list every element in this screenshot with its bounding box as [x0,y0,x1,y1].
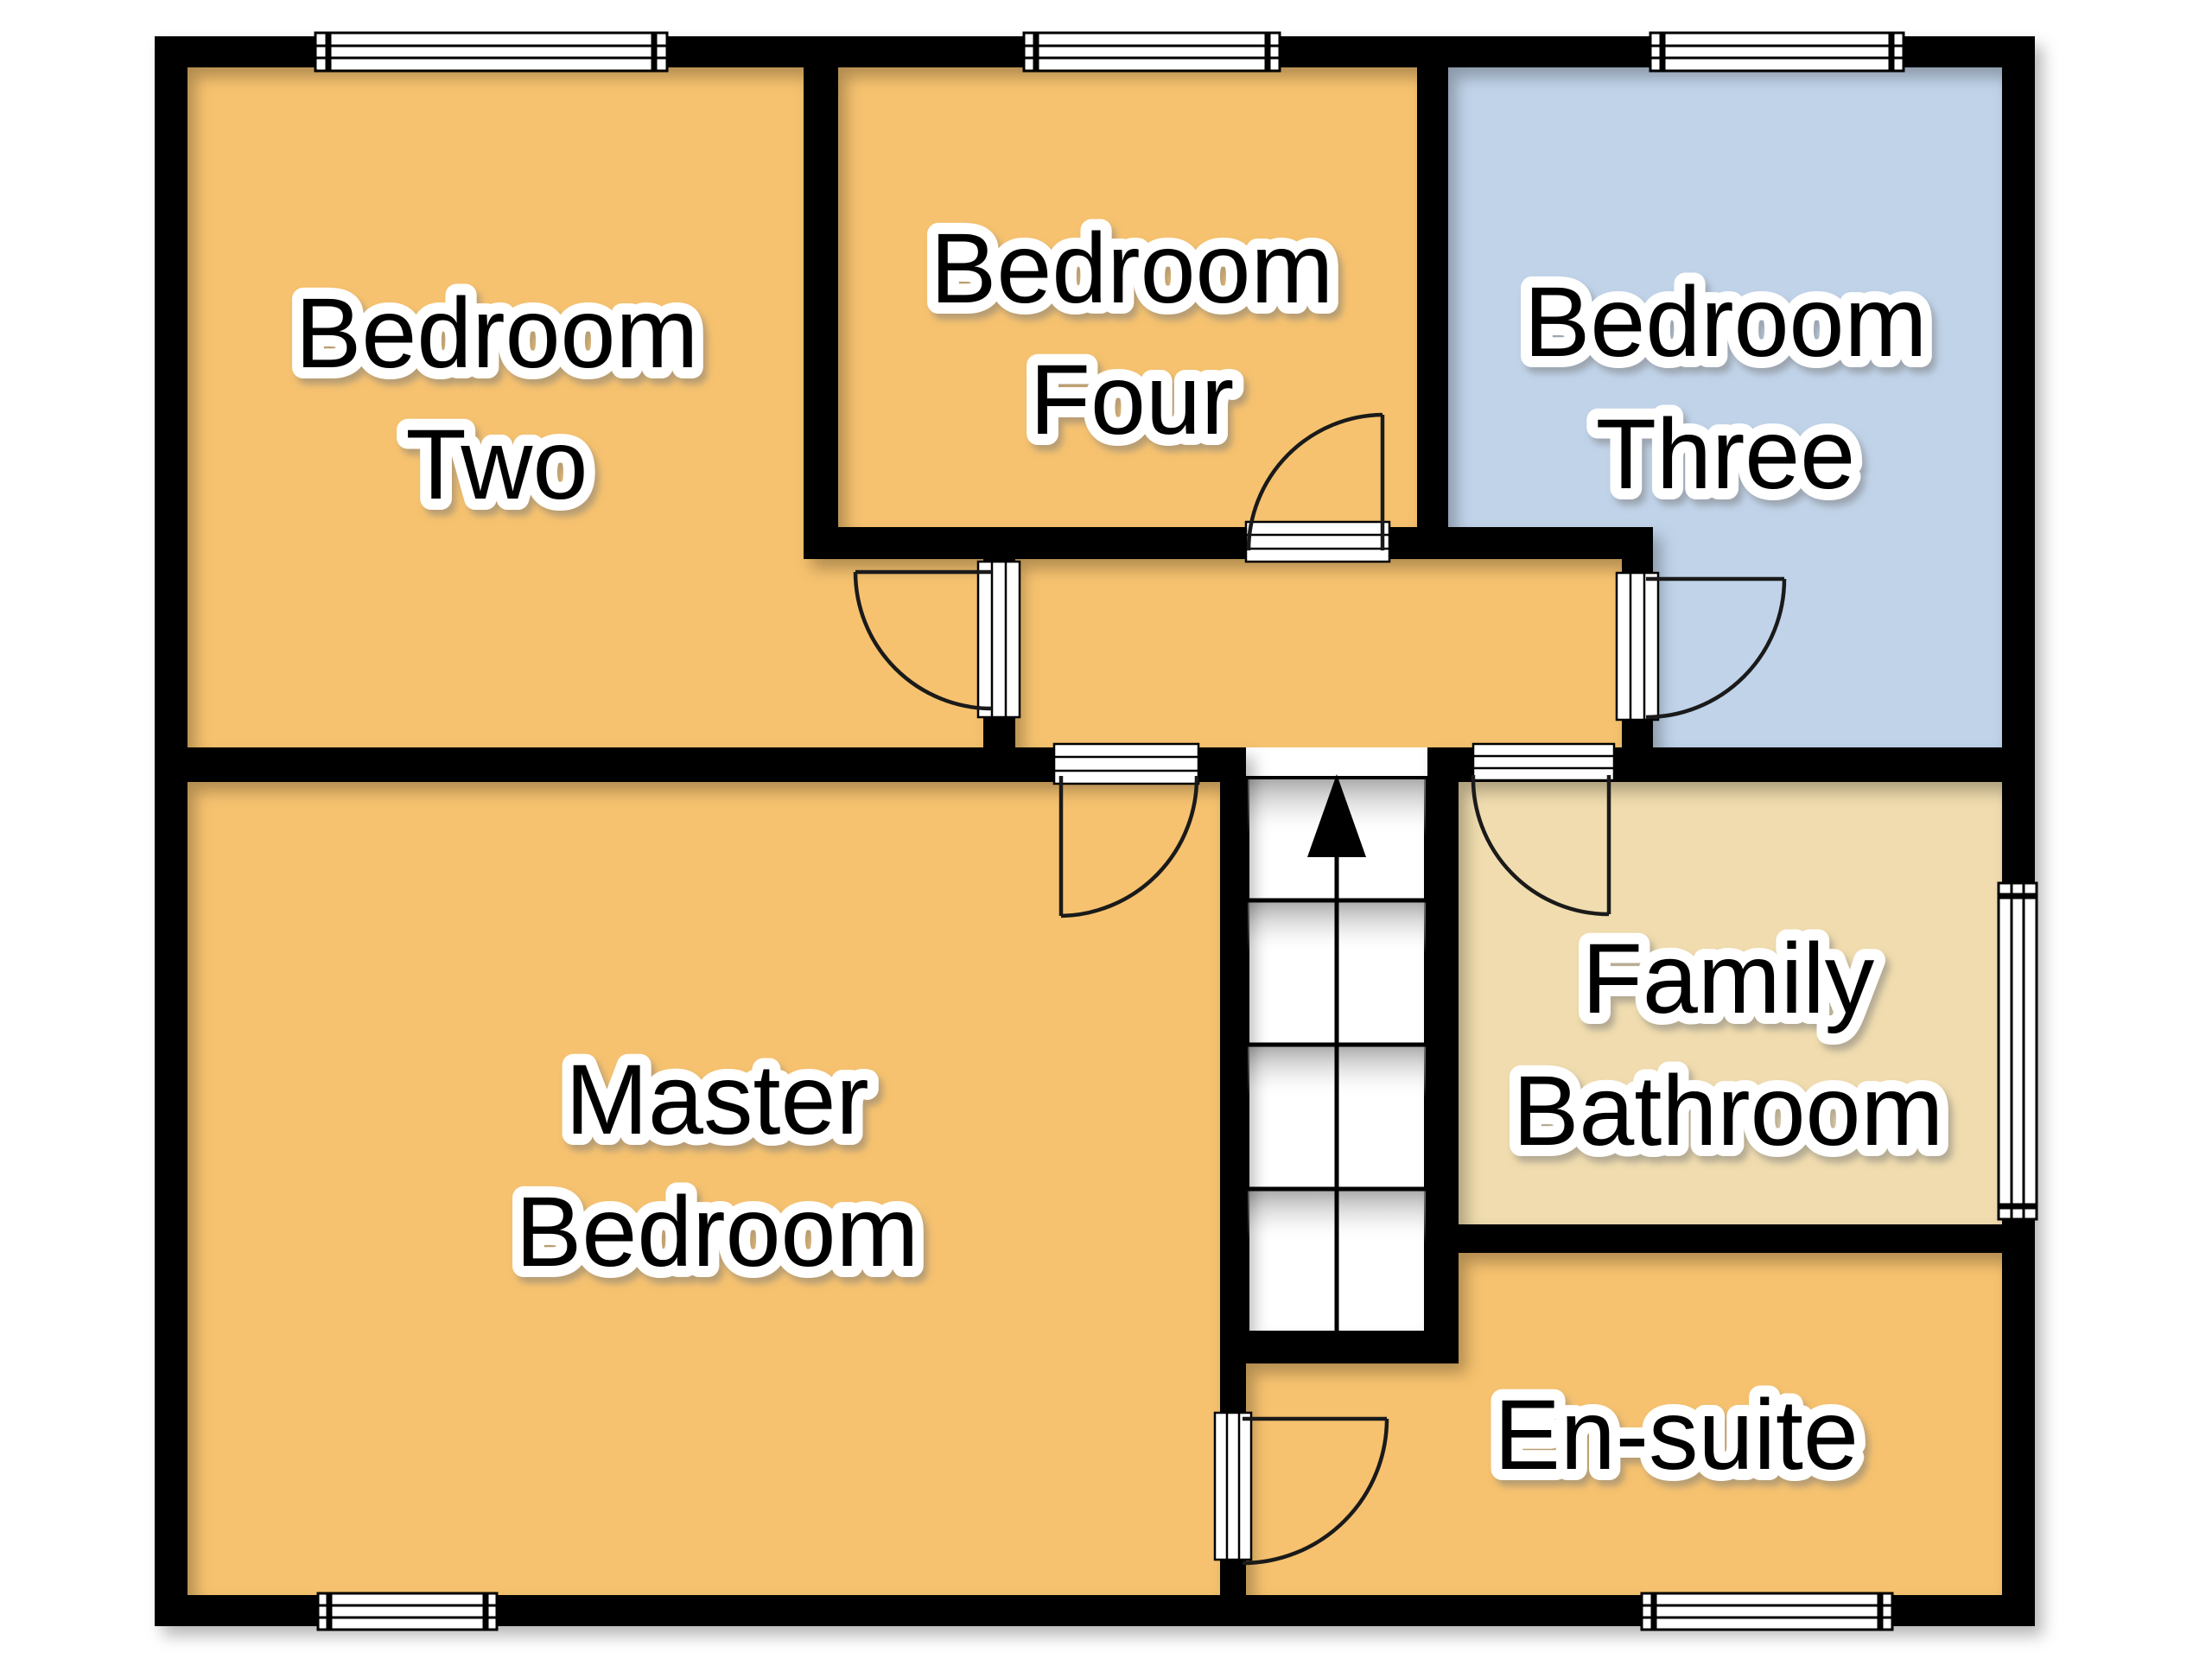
label-bedroom-three-line2: Three [1596,399,1855,510]
door-threshold-bedroom-four [1246,522,1389,562]
room-bedroom-two [188,67,804,747]
wall-stair-bottom [1220,1332,1459,1363]
label-bedroom-two-line2: Two [406,410,588,520]
floor-plan: Bedroom Two Bedroom Four Bedroom Three M… [0,0,2212,1659]
wall-outer-left [155,36,188,1626]
window-master-bedroom-bottom [318,1593,497,1630]
label-master-bedroom-line2: Bedroom [516,1177,919,1287]
wall-bedroom3-west [1417,67,1448,527]
door-threshold-family-bathroom [1473,744,1614,780]
door-threshold-bedroom-two [978,562,1020,717]
window-en-suite-bottom [1642,1593,1892,1630]
wall-bedroom2-bedroom4-divider [804,67,838,559]
label-family-bathroom-line2: Bathroom [1513,1056,1944,1166]
window-bedroom-three-top [1650,33,1904,71]
door-threshold-en-suite [1215,1413,1251,1560]
door-threshold-bedroom-three [1617,573,1658,720]
door-threshold-master-bedroom [1054,744,1198,784]
wall-bedroom4-bottom [804,527,1653,559]
label-bedroom-two-line1: Bedroom [296,278,699,389]
window-bedroom-four-top [1024,33,1280,71]
window-bedroom-two-top [315,33,667,71]
wall-stairwell-right [1427,747,1459,1363]
label-family-bathroom-line1: Family [1582,924,1875,1034]
wall-bathroom-ensuite-divider [1427,1224,2004,1253]
floor-plan-canvas: Bedroom Two Bedroom Four Bedroom Three M… [0,0,2212,1659]
label-bedroom-four-line1: Bedroom [931,213,1334,324]
room-landing [1015,556,1622,747]
staircase [1248,774,1426,1332]
room-bedroom-three-lower [1653,527,2002,747]
label-master-bedroom-line1: Master [565,1045,868,1155]
label-bedroom-four-line2: Four [1030,345,1234,455]
window-family-bathroom-right [1999,883,2037,1219]
wall-outer-right [2002,36,2035,1626]
label-en-suite: En-suite [1494,1380,1859,1491]
label-bedroom-three-line1: Bedroom [1524,267,1928,378]
room-bedroom-two-entry-alcove [804,559,983,747]
